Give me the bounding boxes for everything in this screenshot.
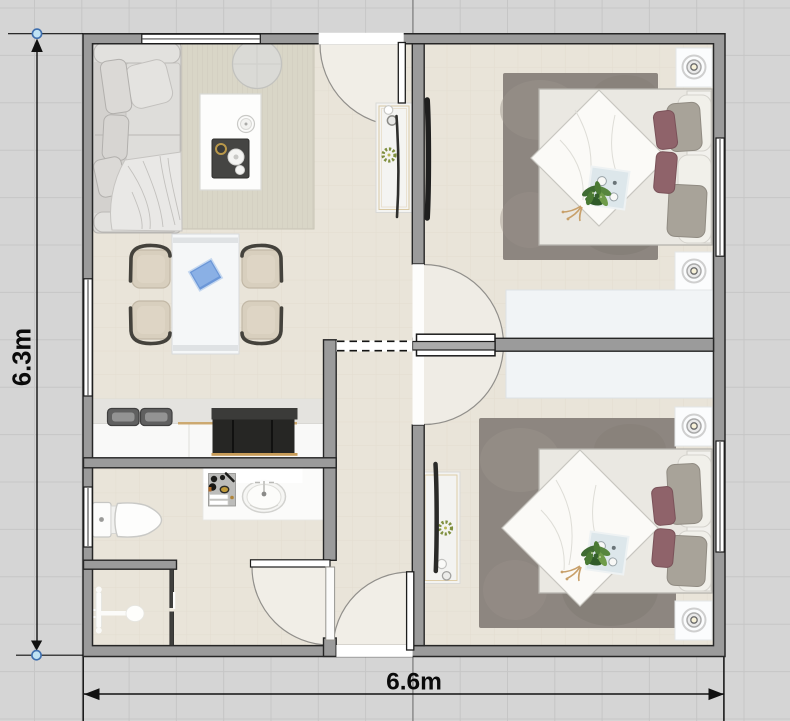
svg-text:6.3m: 6.3m — [9, 328, 37, 386]
svg-text:6.6m: 6.6m — [386, 669, 442, 696]
